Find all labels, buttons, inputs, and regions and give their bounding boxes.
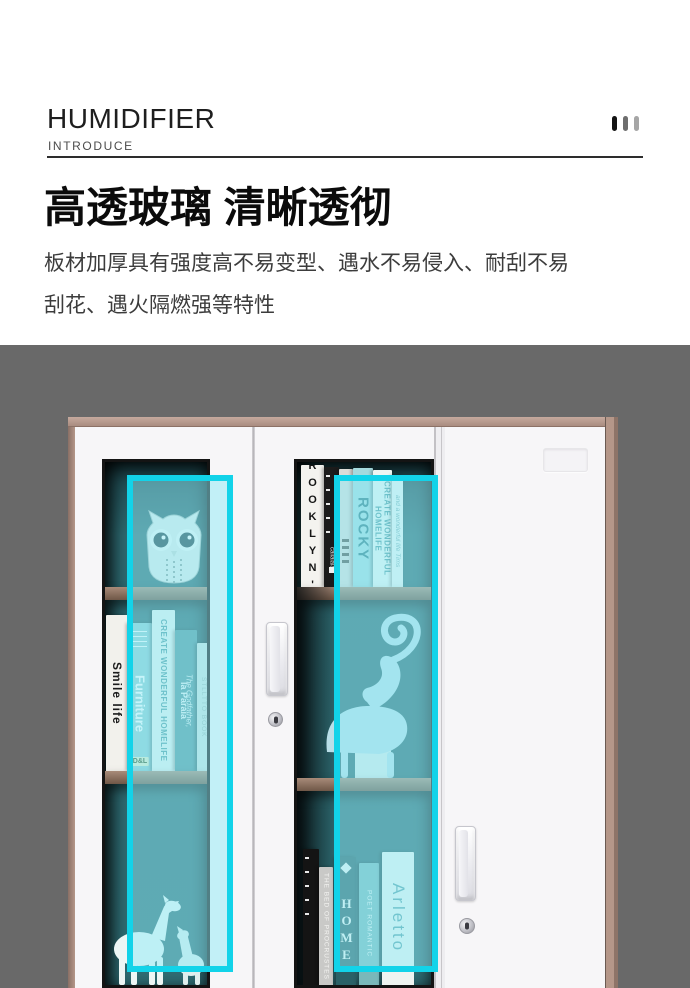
book-title: Smile life bbox=[106, 615, 128, 771]
cabinet-left-trim bbox=[68, 427, 75, 988]
right-door-lock bbox=[459, 918, 475, 934]
middle-door-lock bbox=[268, 712, 283, 727]
decor-bars-icon bbox=[612, 116, 639, 131]
handle-recess bbox=[459, 830, 468, 897]
product-detail-page: HUMIDIFIER INTRODUCE 高透玻璃 清晰透彻 板材加厚具有强度高… bbox=[0, 0, 690, 988]
highlight-rect-middle-glass bbox=[334, 475, 438, 972]
product-photo: Smile life Furniture D&L CREATE WONDERFU… bbox=[0, 345, 690, 988]
right-door-label-plate bbox=[543, 448, 588, 472]
door-gap bbox=[252, 427, 255, 988]
right-door-handle bbox=[455, 826, 476, 901]
handle-recess bbox=[270, 626, 280, 692]
highlight-rect-left-glass bbox=[127, 475, 233, 972]
spine-marks bbox=[305, 857, 309, 927]
page-title: 高透玻璃 清晰透彻 bbox=[44, 174, 392, 235]
book-black-spine bbox=[303, 849, 319, 985]
book-title: THE BED OF PROCRUSTES bbox=[319, 867, 333, 985]
keyhole-icon bbox=[465, 923, 469, 930]
decor-bar bbox=[634, 116, 639, 131]
book-title: BROOKLYN'S bbox=[301, 465, 324, 587]
decor-bar bbox=[623, 116, 628, 131]
header-divider bbox=[47, 156, 643, 158]
cabinet-top-trim bbox=[68, 417, 618, 427]
decor-bar bbox=[612, 116, 617, 131]
book-brooklyns: BROOKLYN'S bbox=[301, 465, 324, 587]
middle-door-handle bbox=[266, 622, 288, 696]
keyhole-icon bbox=[274, 716, 278, 723]
book-bed-of-procrustes: THE BED OF PROCRUSTES bbox=[319, 867, 333, 985]
book-smile-life: Smile life bbox=[106, 615, 128, 771]
section-title: HUMIDIFIER bbox=[47, 103, 215, 135]
section-subtitle: INTRODUCE bbox=[48, 139, 134, 153]
cabinet-right-trim bbox=[605, 417, 618, 988]
page-description: 板材加厚具有强度高不易变型、遇水不易侵入、耐刮不易 刮花、遇火隔燃强等特性 bbox=[44, 243, 662, 327]
